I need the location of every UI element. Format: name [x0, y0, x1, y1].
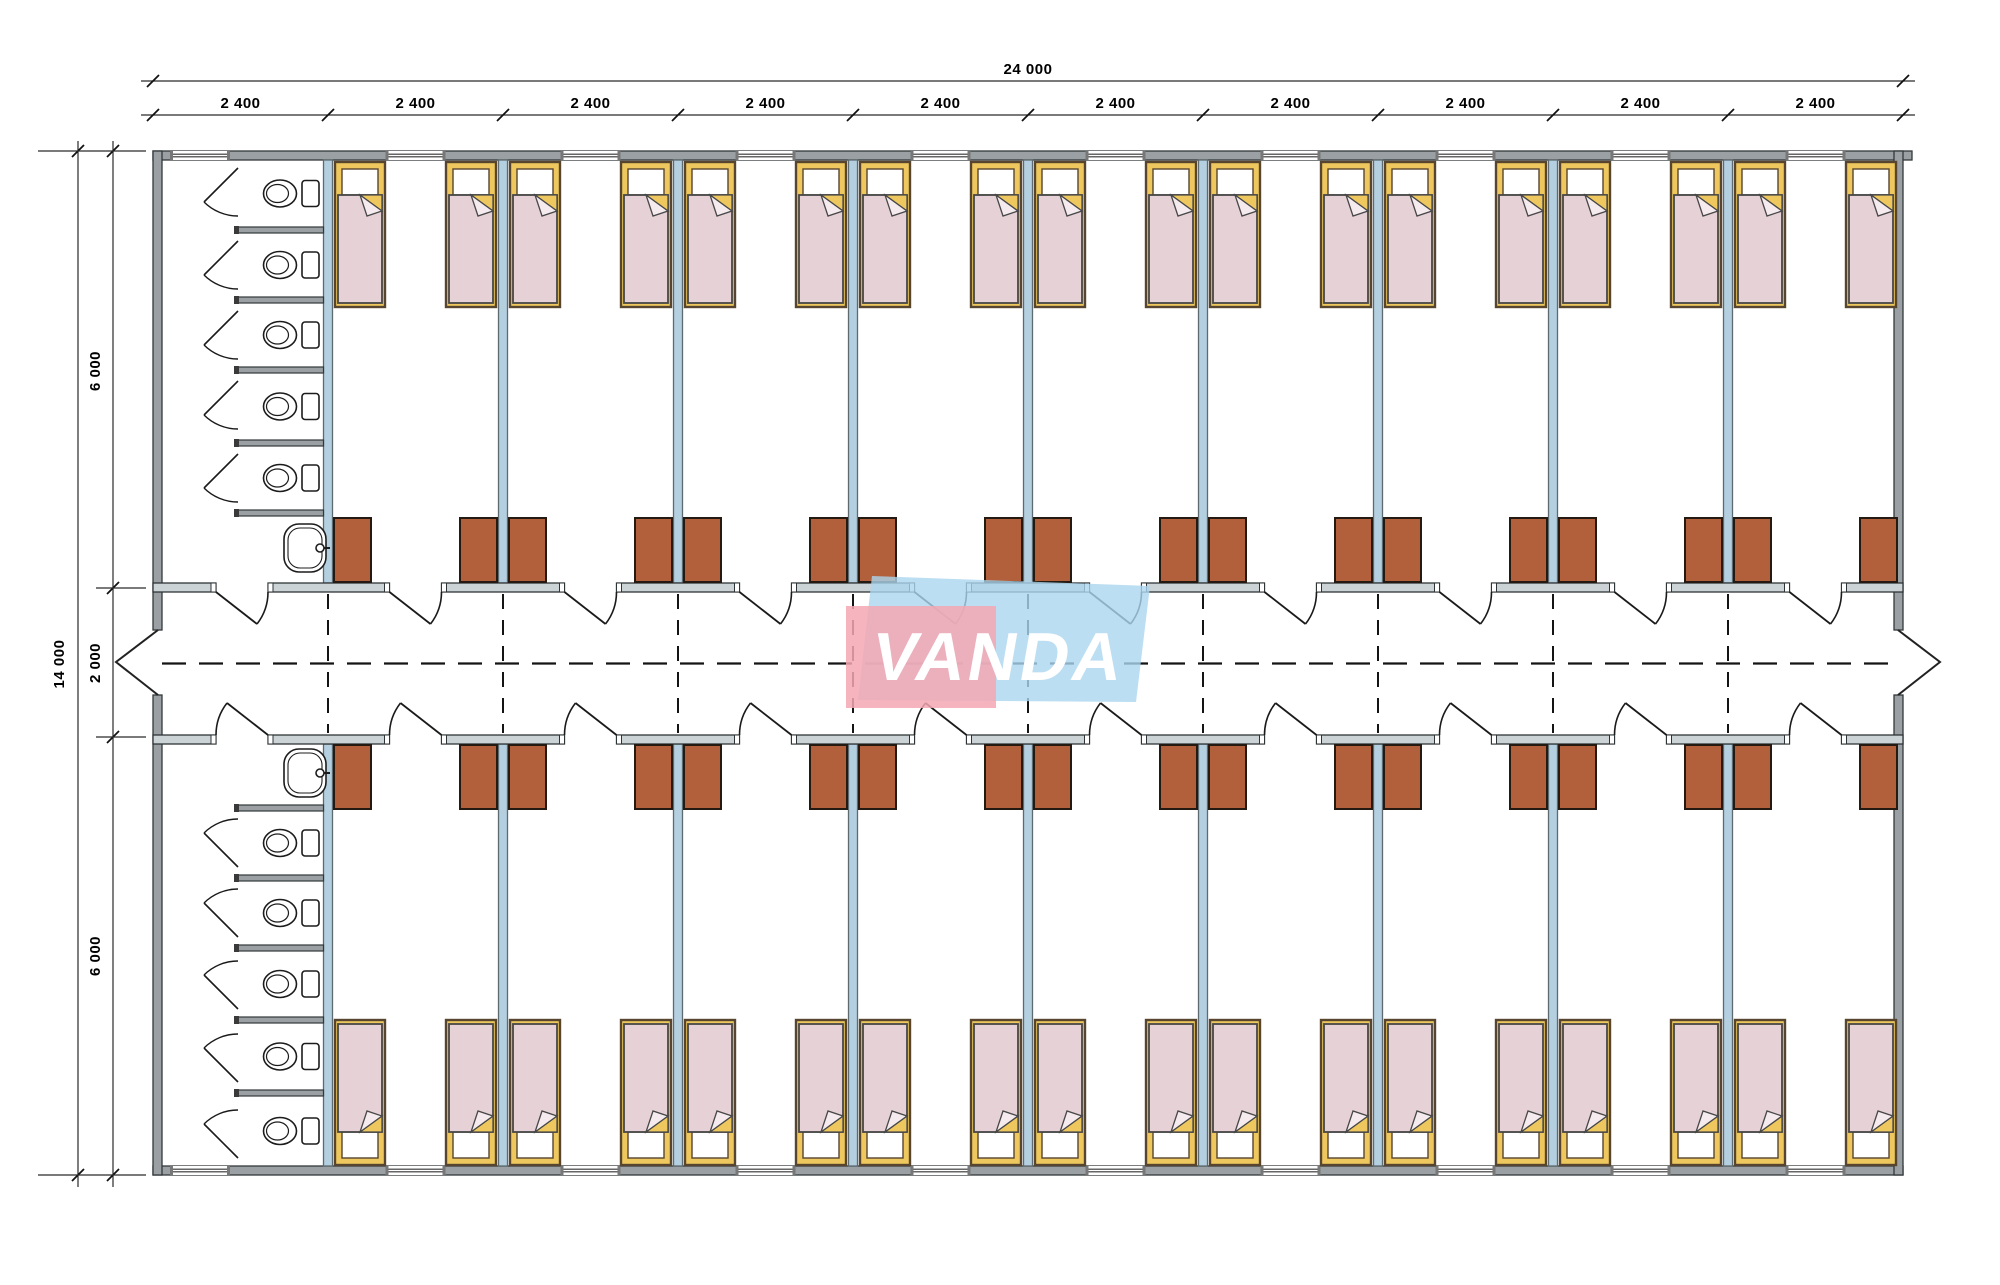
- window-opening: [1263, 1166, 1319, 1175]
- partition-wall-bottom-wing: [324, 744, 333, 1166]
- dimension-label-module: 2 400: [920, 95, 960, 112]
- corridor-wall-segment: [442, 583, 565, 592]
- door-jamb: [1610, 583, 1615, 592]
- bed: [1846, 1020, 1896, 1165]
- window-jamb: [736, 151, 739, 160]
- bed-pillow: [1678, 169, 1714, 195]
- bed-pillow: [1742, 169, 1778, 195]
- dimension-label-module: 2 400: [220, 95, 260, 112]
- wardrobe: [985, 518, 1022, 582]
- window: [1611, 1166, 1671, 1175]
- wardrobe: [985, 745, 1022, 809]
- bed-pillow: [1153, 1132, 1189, 1158]
- stall-door-jamb: [234, 509, 239, 517]
- logo-text: VANDA: [867, 618, 1132, 694]
- wardrobe: [810, 745, 847, 809]
- bed: [1035, 1020, 1085, 1165]
- bed: [510, 162, 560, 307]
- window: [1611, 151, 1671, 160]
- door-jamb: [1842, 583, 1847, 592]
- toilet-tank: [302, 252, 319, 278]
- bed-pillow: [1042, 169, 1078, 195]
- partition-wall-bottom-wing: [499, 744, 508, 1166]
- window-jamb: [618, 151, 621, 160]
- door-jamb: [967, 735, 972, 744]
- corridor-wall-segment: [153, 583, 216, 592]
- toilet-bowl: [264, 252, 297, 279]
- door-jamb: [910, 735, 915, 744]
- door-jamb: [1260, 735, 1265, 744]
- dimension-label-total-height: 14 000: [51, 640, 68, 689]
- stall-door-jamb: [234, 226, 239, 234]
- window-jamb: [1493, 151, 1496, 160]
- wardrobe: [1685, 518, 1722, 582]
- window-jamb: [1668, 151, 1671, 160]
- bed-pillow: [803, 169, 839, 195]
- wardrobe: [1034, 518, 1071, 582]
- window: [386, 1166, 446, 1175]
- window-opening: [738, 151, 794, 160]
- window-opening: [388, 1166, 444, 1175]
- wardrobe: [1860, 745, 1897, 809]
- stall-divider-wall: [238, 1090, 324, 1096]
- window: [1436, 151, 1496, 160]
- bed-pillow: [1503, 1132, 1539, 1158]
- window: [1436, 1166, 1496, 1175]
- stall-divider-wall: [238, 440, 324, 446]
- door-jamb: [1142, 735, 1147, 744]
- wardrobe: [859, 518, 896, 582]
- bed-pillow: [1742, 1132, 1778, 1158]
- stall-divider-wall: [238, 805, 324, 811]
- partition-wall-bottom-wing: [1199, 744, 1208, 1166]
- bed: [1735, 1020, 1785, 1165]
- window-jamb: [170, 1166, 173, 1175]
- stall-divider-wall: [238, 510, 324, 516]
- corridor-wall-segment: [617, 735, 740, 744]
- bed: [796, 1020, 846, 1165]
- bed: [510, 1020, 560, 1165]
- wardrobe: [1384, 745, 1421, 809]
- window: [736, 151, 796, 160]
- window-jamb: [1668, 1166, 1671, 1175]
- stall-divider-wall: [238, 1017, 324, 1023]
- partition-wall-top-wing: [1724, 160, 1733, 583]
- window: [170, 1166, 230, 1175]
- window-opening: [1088, 1166, 1144, 1175]
- door-jamb: [442, 583, 447, 592]
- window: [561, 1166, 621, 1175]
- dimension-label-left-segment: 2 000: [87, 643, 104, 683]
- bed-pillow: [453, 169, 489, 195]
- corridor-wall-segment: [1842, 735, 1904, 744]
- toilet-bowl: [264, 322, 297, 349]
- window: [911, 1166, 971, 1175]
- window: [1786, 151, 1846, 160]
- wardrobe: [635, 518, 672, 582]
- door-jamb: [1085, 735, 1090, 744]
- toilet: [264, 830, 320, 857]
- toilet: [264, 900, 320, 927]
- dimension-label-module: 2 400: [395, 95, 435, 112]
- bed: [1496, 162, 1546, 307]
- wardrobe: [460, 745, 497, 809]
- bed: [1210, 162, 1260, 307]
- toilet-tank: [302, 394, 319, 420]
- bed-pillow: [342, 169, 378, 195]
- bed: [335, 1020, 385, 1165]
- toilet-bowl: [264, 393, 297, 420]
- wardrobe: [1860, 518, 1897, 582]
- wardrobe: [1510, 745, 1547, 809]
- window-jamb: [1143, 1166, 1146, 1175]
- window-jamb: [1436, 151, 1439, 160]
- window-opening: [563, 151, 619, 160]
- partition-wall-top-wing: [674, 160, 683, 583]
- window-jamb: [1611, 1166, 1614, 1175]
- door-jamb: [1435, 583, 1440, 592]
- wardrobe: [684, 518, 721, 582]
- corridor-wall-segment: [1142, 735, 1265, 744]
- corridor-wall-segment: [1492, 583, 1615, 592]
- stall-door-jamb: [234, 1016, 239, 1024]
- partition-wall-bottom-wing: [1374, 744, 1383, 1166]
- stall-divider-wall: [238, 367, 324, 373]
- wardrobe: [1559, 518, 1596, 582]
- bed: [335, 162, 385, 307]
- window-opening: [1613, 1166, 1669, 1175]
- dimension-label-module: 2 400: [745, 95, 785, 112]
- window: [1786, 1166, 1846, 1175]
- window-jamb: [1436, 1166, 1439, 1175]
- window-opening: [913, 1166, 969, 1175]
- partition-wall-bottom-wing: [1724, 744, 1733, 1166]
- door-jamb: [442, 735, 447, 744]
- window: [561, 151, 621, 160]
- door-jamb: [211, 583, 216, 592]
- washbasin: [284, 524, 330, 572]
- toilet: [264, 1118, 320, 1145]
- corridor-wall-segment: [153, 735, 216, 744]
- wardrobe: [1734, 745, 1771, 809]
- bed-pillow: [1328, 169, 1364, 195]
- corridor-wall-segment: [1317, 583, 1440, 592]
- logo-watermark: VANDA: [846, 576, 1150, 708]
- stall-divider-wall: [238, 227, 324, 233]
- door-jamb: [560, 735, 565, 744]
- exterior-wall-left-upper: [153, 151, 162, 630]
- bed-pillow: [453, 1132, 489, 1158]
- window-jamb: [561, 1166, 564, 1175]
- window-jamb: [1493, 1166, 1496, 1175]
- wardrobe: [1734, 518, 1771, 582]
- corridor-wall-segment: [1142, 583, 1265, 592]
- door-jamb: [1317, 583, 1322, 592]
- stall-divider-wall: [238, 875, 324, 881]
- corridor-wall-segment: [1667, 583, 1790, 592]
- bed: [685, 1020, 735, 1165]
- wardrobe: [1335, 745, 1372, 809]
- bed: [971, 1020, 1021, 1165]
- partition-wall-top-wing: [1024, 160, 1033, 583]
- wardrobe: [1685, 745, 1722, 809]
- window-opening: [172, 151, 228, 160]
- door-jamb: [268, 583, 273, 592]
- logo-text-group: VANDA: [867, 618, 1132, 694]
- bed: [685, 162, 735, 307]
- dimension-label-module: 2 400: [1795, 95, 1835, 112]
- window-jamb: [1843, 151, 1846, 160]
- wardrobe: [1160, 518, 1197, 582]
- bed: [1496, 1020, 1546, 1165]
- corridor-wall-segment: [1667, 735, 1790, 744]
- toilet: [264, 180, 320, 207]
- door-jamb: [1610, 735, 1615, 744]
- floor-plan-page: 24 0002 4002 4002 4002 4002 4002 4002 40…: [0, 0, 2000, 1285]
- window-jamb: [227, 1166, 230, 1175]
- corridor-wall-segment: [442, 735, 565, 744]
- door-jamb: [735, 583, 740, 592]
- window-opening: [563, 1166, 619, 1175]
- corridor-wall-segment: [1317, 735, 1440, 744]
- washbasin: [284, 749, 330, 797]
- window: [1261, 151, 1321, 160]
- corridor-wall-segment: [1842, 583, 1904, 592]
- toilet: [264, 465, 320, 492]
- bed-pillow: [803, 1132, 839, 1158]
- wardrobe: [1510, 518, 1547, 582]
- dimension-label-module: 2 400: [1095, 95, 1135, 112]
- door-jamb: [1842, 735, 1847, 744]
- partition-wall-bottom-wing: [849, 744, 858, 1166]
- dimension-label-left-segment: 6 000: [87, 351, 104, 391]
- bed-pillow: [692, 169, 728, 195]
- door-jamb: [385, 735, 390, 744]
- wardrobe: [1559, 745, 1596, 809]
- door-jamb: [1667, 735, 1672, 744]
- bed: [1385, 1020, 1435, 1165]
- window: [1086, 151, 1146, 160]
- bed: [1210, 1020, 1260, 1165]
- wardrobe: [1209, 745, 1246, 809]
- wardrobe: [859, 745, 896, 809]
- partition-wall-top-wing: [1199, 160, 1208, 583]
- bed-pillow: [342, 1132, 378, 1158]
- window: [386, 151, 446, 160]
- door-jamb: [1492, 583, 1497, 592]
- window-opening: [1613, 151, 1669, 160]
- window-jamb: [443, 151, 446, 160]
- window-opening: [388, 151, 444, 160]
- toilet-tank: [302, 465, 319, 491]
- bed-pillow: [628, 1132, 664, 1158]
- toilet-bowl: [264, 465, 297, 492]
- toilet-bowl: [264, 971, 297, 998]
- stall-divider-wall: [238, 945, 324, 951]
- toilet: [264, 322, 320, 349]
- bed-pillow: [1567, 1132, 1603, 1158]
- corridor-wall-segment: [792, 735, 915, 744]
- door-jamb: [1667, 583, 1672, 592]
- stall-door-jamb: [234, 804, 239, 812]
- toilet: [264, 971, 320, 998]
- toilet-tank: [302, 181, 319, 207]
- floor-plan-canvas: 24 0002 4002 4002 4002 4002 4002 4002 40…: [0, 0, 2000, 1285]
- wardrobe: [1209, 518, 1246, 582]
- bed: [1560, 162, 1610, 307]
- window-jamb: [618, 1166, 621, 1175]
- bed: [1671, 162, 1721, 307]
- door-jamb: [792, 583, 797, 592]
- window-jamb: [793, 151, 796, 160]
- window: [911, 151, 971, 160]
- bed-pillow: [517, 1132, 553, 1158]
- wardrobe: [1384, 518, 1421, 582]
- bed: [1321, 1020, 1371, 1165]
- toilet-tank: [302, 900, 319, 926]
- window-jamb: [1611, 151, 1614, 160]
- toilet-tank: [302, 830, 319, 856]
- window-opening: [172, 1166, 228, 1175]
- bed-pillow: [1217, 169, 1253, 195]
- window-jamb: [793, 1166, 796, 1175]
- window-opening: [1088, 151, 1144, 160]
- wardrobe: [1335, 518, 1372, 582]
- bed-pillow: [1503, 169, 1539, 195]
- door-jamb: [1492, 735, 1497, 744]
- partition-wall-top-wing: [849, 160, 858, 583]
- window-opening: [1263, 151, 1319, 160]
- dimension-label-module: 2 400: [1445, 95, 1485, 112]
- toilet-tank: [302, 322, 319, 348]
- wardrobe: [460, 518, 497, 582]
- window-opening: [913, 151, 969, 160]
- bed-pillow: [1328, 1132, 1364, 1158]
- window-jamb: [227, 151, 230, 160]
- exterior-wall-left-lower: [153, 695, 162, 1175]
- wardrobe: [334, 745, 371, 809]
- bed: [621, 1020, 671, 1165]
- partition-wall-top-wing: [1549, 160, 1558, 583]
- tap-head: [316, 544, 324, 552]
- toilet-bowl: [264, 1043, 297, 1070]
- door-jamb: [385, 583, 390, 592]
- window: [736, 1166, 796, 1175]
- bed: [1846, 162, 1896, 307]
- bed-pillow: [978, 169, 1014, 195]
- wardrobe: [1160, 745, 1197, 809]
- window-jamb: [170, 151, 173, 160]
- window-jamb: [1261, 1166, 1264, 1175]
- bed-pillow: [1678, 1132, 1714, 1158]
- wardrobe: [334, 518, 371, 582]
- dimension-label-left-segment: 6 000: [87, 936, 104, 976]
- stall-door-jamb: [234, 439, 239, 447]
- dimension-label-module: 2 400: [570, 95, 610, 112]
- corridor-wall-segment: [967, 735, 1090, 744]
- corridor-wall-segment: [617, 583, 740, 592]
- door-jamb: [735, 735, 740, 744]
- window-jamb: [911, 1166, 914, 1175]
- window-opening: [1438, 1166, 1494, 1175]
- bed: [1146, 1020, 1196, 1165]
- window: [1261, 1166, 1321, 1175]
- wardrobe: [1034, 745, 1071, 809]
- window-jamb: [1318, 151, 1321, 160]
- window-jamb: [443, 1166, 446, 1175]
- toilet-bowl: [264, 830, 297, 857]
- partition-wall-top-wing: [324, 160, 333, 583]
- bed-pillow: [517, 169, 553, 195]
- door-jamb: [617, 583, 622, 592]
- window-opening: [738, 1166, 794, 1175]
- toilet-tank: [302, 971, 319, 997]
- window-jamb: [1786, 1166, 1789, 1175]
- bed: [860, 1020, 910, 1165]
- bed: [621, 162, 671, 307]
- bed: [1146, 162, 1196, 307]
- window-jamb: [968, 1166, 971, 1175]
- tap-head: [316, 769, 324, 777]
- window-opening: [1438, 151, 1494, 160]
- bed: [1035, 162, 1085, 307]
- bed-pillow: [1392, 169, 1428, 195]
- window-jamb: [1318, 1166, 1321, 1175]
- wardrobe: [684, 745, 721, 809]
- bed-pillow: [867, 169, 903, 195]
- toilet-tank: [302, 1044, 319, 1070]
- bed-pillow: [978, 1132, 1014, 1158]
- corridor-wall-segment: [1492, 735, 1615, 744]
- bed-pillow: [1567, 169, 1603, 195]
- bed-pillow: [1217, 1132, 1253, 1158]
- toilet-bowl: [264, 180, 297, 207]
- toilet: [264, 1043, 320, 1070]
- toilet-bowl: [264, 900, 297, 927]
- bed-pillow: [1042, 1132, 1078, 1158]
- wardrobe: [509, 518, 546, 582]
- window-opening: [1788, 1166, 1844, 1175]
- door-jamb: [211, 735, 216, 744]
- stall-divider-wall: [238, 297, 324, 303]
- partition-wall-top-wing: [1374, 160, 1383, 583]
- window: [170, 151, 230, 160]
- window-jamb: [1786, 151, 1789, 160]
- bed-pillow: [692, 1132, 728, 1158]
- partition-wall-top-wing: [499, 160, 508, 583]
- window-jamb: [1086, 151, 1089, 160]
- window-jamb: [386, 151, 389, 160]
- wardrobe: [635, 745, 672, 809]
- door-jamb: [560, 583, 565, 592]
- bed-pillow: [867, 1132, 903, 1158]
- door-jamb: [617, 735, 622, 744]
- wardrobe: [810, 518, 847, 582]
- bed-pillow: [1853, 169, 1889, 195]
- bed: [1321, 162, 1371, 307]
- door-jamb: [792, 735, 797, 744]
- window-jamb: [968, 151, 971, 160]
- bed: [796, 162, 846, 307]
- window-jamb: [561, 151, 564, 160]
- bed: [446, 162, 496, 307]
- bed: [1560, 1020, 1610, 1165]
- bed-pillow: [1392, 1132, 1428, 1158]
- toilet: [264, 393, 320, 420]
- toilet-tank: [302, 1118, 319, 1144]
- door-jamb: [1260, 583, 1265, 592]
- door-jamb: [1785, 583, 1790, 592]
